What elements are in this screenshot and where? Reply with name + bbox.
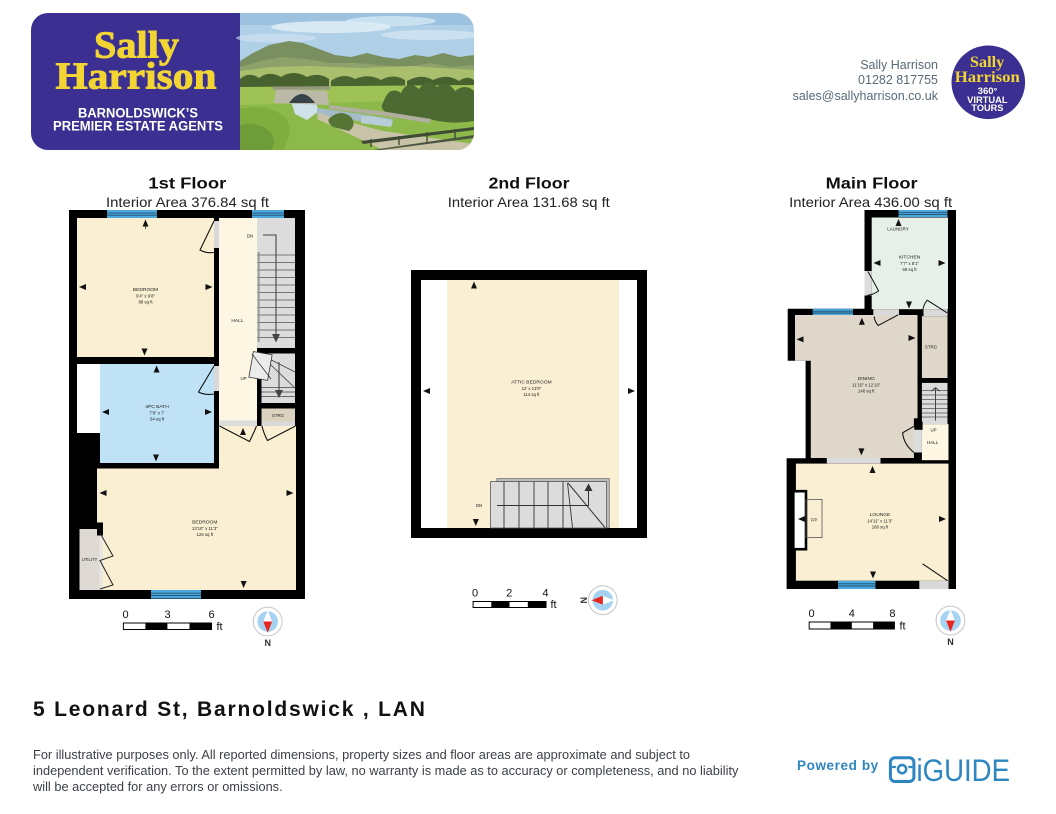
svg-text:TOURS: TOURS [971,103,1003,114]
svg-text:KITCHEN: KITCHEN [899,255,921,261]
svg-text:7’7” x 8’1”: 7’7” x 8’1” [900,261,919,266]
svg-text:N: N [579,597,589,604]
svg-text:BEDROOM: BEDROOM [133,287,158,293]
svg-text:11’10” x 12’10”: 11’10” x 12’10” [852,383,881,388]
svg-text:4: 4 [542,588,548,600]
svg-text:ft: ft [217,621,223,633]
svg-text:DN: DN [476,503,482,508]
svg-text:69 sq ft: 69 sq ft [902,267,917,272]
svg-text:HALL: HALL [231,318,244,324]
svg-text:Main Floor: Main Floor [826,176,918,193]
svg-text:1st Floor: 1st Floor [148,176,226,193]
svg-text:54 sq ft: 54 sq ft [150,417,165,422]
svg-text:0: 0 [123,609,129,621]
svg-text:DINING: DINING [858,376,875,382]
svg-text:114 sq ft: 114 sq ft [523,392,540,397]
svg-text:STRG: STRG [925,345,938,350]
svg-text:168 sq ft: 168 sq ft [872,525,889,530]
svg-text:2nd Floor: 2nd Floor [489,176,570,193]
svg-text:UTILITY: UTILITY [82,557,98,562]
svg-text:BEDROOM: BEDROOM [192,520,217,526]
svg-text:146 sq ft: 146 sq ft [858,389,875,394]
svg-text:HALL: HALL [927,440,939,445]
svg-text:13’10” x 11’3”: 13’10” x 11’3” [192,526,218,531]
svg-text:ft: ft [551,599,557,611]
svg-text:DN: DN [247,234,253,239]
svg-text:0: 0 [472,588,478,600]
svg-text:N: N [264,638,271,648]
svg-text:6: 6 [208,609,214,621]
svg-text:STRG: STRG [272,413,285,418]
svg-text:Harrison: Harrison [56,56,217,98]
svg-text:UP: UP [240,376,246,381]
svg-text:Interior Area 131.68 sq ft: Interior Area 131.68 sq ft [448,195,610,210]
svg-text:0: 0 [808,608,814,620]
svg-text:UP: UP [930,428,936,433]
svg-text:12’ x 13’9”: 12’ x 13’9” [522,386,542,391]
svg-text:4PC BATH: 4PC BATH [145,404,169,410]
svg-text:126 sq ft: 126 sq ft [197,532,214,537]
svg-text:Harrison: Harrison [955,69,1020,86]
svg-text:7’8” x 7’: 7’8” x 7’ [149,411,164,416]
svg-text:8: 8 [889,608,895,620]
svg-text:ATTIC BEDROOM: ATTIC BEDROOM [511,380,551,386]
svg-text:PREMIER ESTATE AGENTS: PREMIER ESTATE AGENTS [53,119,223,134]
svg-text:ft: ft [900,621,906,633]
svg-text:LOUNGE: LOUNGE [870,512,891,518]
svg-text:LAUNDRY: LAUNDRY [887,227,908,232]
svg-text:3: 3 [164,609,170,621]
svg-text:9’4” x 9’8”: 9’4” x 9’8” [136,294,155,299]
svg-text:Interior Area 376.84 sq ft: Interior Area 376.84 sq ft [106,195,269,210]
svg-text:Interior Area 436.00 sq ft: Interior Area 436.00 sq ft [789,195,952,210]
svg-text:N: N [947,637,954,647]
svg-text:4: 4 [849,608,855,620]
svg-text:88 sq ft: 88 sq ft [138,300,153,305]
svg-text:2: 2 [506,588,512,600]
svg-text:14’11” x 11’3”: 14’11” x 11’3” [867,519,893,524]
svg-text:F/P: F/P [811,518,818,523]
svg-text:iGUIDE: iGUIDE [917,752,1011,788]
